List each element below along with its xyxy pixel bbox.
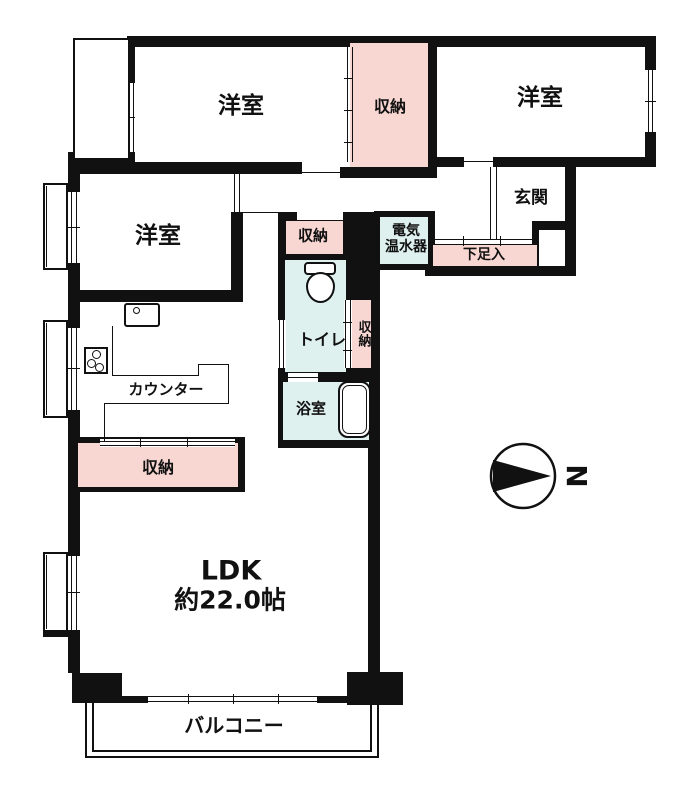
- wall-corner-block: [347, 672, 403, 705]
- label-ldk-size: 約22.0帖: [174, 587, 286, 616]
- sliding-door-tick: [344, 78, 353, 79]
- counter-line: [112, 326, 113, 376]
- counter-line: [198, 364, 229, 365]
- wall-segment: [340, 167, 437, 178]
- label-bedroom-left: 洋室: [135, 223, 181, 249]
- wall-segment: [68, 290, 243, 302]
- window-line: [71, 556, 72, 630]
- door-line: [288, 377, 318, 378]
- window-line: [71, 328, 72, 410]
- door-line: [283, 320, 284, 368]
- counter-line: [104, 403, 105, 442]
- bathtub-inner: [342, 385, 367, 434]
- sliding-door-line: [347, 47, 348, 162]
- window-tick: [68, 227, 80, 228]
- sliding-door-tick: [187, 437, 188, 447]
- label-ldk-name: LDK: [201, 555, 262, 586]
- burner: [92, 350, 101, 359]
- partition-line: [490, 167, 491, 239]
- door-line: [243, 212, 278, 213]
- label-shoe-cabinet: 下足入: [463, 247, 505, 263]
- counter-line: [112, 375, 199, 376]
- wall-corner-block: [72, 673, 122, 703]
- wall-segment: [428, 36, 437, 178]
- sliding-door-line: [100, 441, 235, 442]
- stove-icon: [84, 347, 108, 374]
- label-bedroom-top-right: 洋室: [517, 85, 563, 111]
- door-line: [279, 320, 280, 368]
- sliding-door-tick: [463, 236, 464, 246]
- label-bedroom-top-left: 洋室: [218, 93, 264, 119]
- counter-line: [228, 364, 229, 404]
- wall-sill: [122, 696, 148, 703]
- window-tick: [645, 101, 656, 102]
- sink-icon: [124, 303, 160, 327]
- sliding-door-tick: [343, 350, 352, 351]
- door-line: [297, 220, 343, 221]
- sliding-door-tick: [343, 322, 352, 323]
- compass-north-icon: [487, 440, 559, 512]
- door-line: [464, 161, 493, 162]
- label-compass-north: N: [560, 464, 592, 487]
- sliding-door-line: [433, 239, 537, 240]
- faucet-dot: [133, 307, 140, 314]
- wall-right: [645, 132, 656, 167]
- floor-plan: 洋室 収納 洋室 玄関 洋室 収納 電気 温水器 下足入 トイレ 収納 浴室 カ…: [0, 0, 680, 800]
- label-counter: カウンター: [128, 381, 203, 398]
- wall-segment: [437, 157, 464, 167]
- wall-entrance-bottom: [425, 266, 576, 276]
- sliding-door-tick: [344, 142, 353, 143]
- sliding-door-line: [433, 244, 537, 245]
- door-line: [234, 174, 235, 212]
- label-entrance: 玄関: [514, 189, 548, 209]
- window-line: [46, 323, 47, 415]
- label-water-heater-line2: 温水器: [385, 239, 427, 255]
- wall-entrance-right: [565, 157, 576, 276]
- label-toilet: トイレ: [298, 331, 346, 349]
- sliding-door-tick: [344, 110, 353, 111]
- label-closet-top: 収納: [374, 98, 406, 116]
- door-line: [302, 172, 343, 173]
- sliding-door-line: [352, 47, 353, 162]
- wall-sill: [317, 696, 348, 703]
- sliding-door-line: [350, 300, 351, 368]
- window-line: [76, 556, 77, 630]
- sliding-door-tick: [500, 236, 501, 246]
- window-line: [46, 555, 47, 629]
- label-closet-tall: 収納: [355, 320, 370, 348]
- label-balcony: バルコニー: [184, 715, 284, 738]
- wall-right: [645, 36, 656, 70]
- sliding-door-tick: [140, 437, 141, 447]
- window-line: [133, 83, 134, 153]
- wall-ldk-right: [368, 440, 380, 675]
- label-bathroom: 浴室: [296, 400, 326, 417]
- wall-segment: [68, 162, 302, 174]
- counter-line: [198, 364, 199, 376]
- sliding-door-line: [100, 445, 235, 446]
- label-water-heater-line1: 電気: [385, 223, 427, 239]
- label-closet-hall: 収納: [298, 227, 328, 244]
- window-line: [46, 186, 47, 267]
- bathtub-icon: [338, 381, 371, 438]
- wall-segment: [231, 212, 243, 302]
- label-water-heater: 電気 温水器: [385, 223, 427, 255]
- window-bay: [73, 38, 130, 160]
- window-tick: [68, 368, 80, 369]
- window-line: [76, 328, 77, 410]
- window-tick: [68, 592, 80, 593]
- door-line: [239, 174, 240, 212]
- label-closet-ldk: 収納: [142, 459, 174, 477]
- partition-line: [496, 167, 497, 239]
- burner: [95, 363, 104, 372]
- counter-line: [104, 403, 229, 404]
